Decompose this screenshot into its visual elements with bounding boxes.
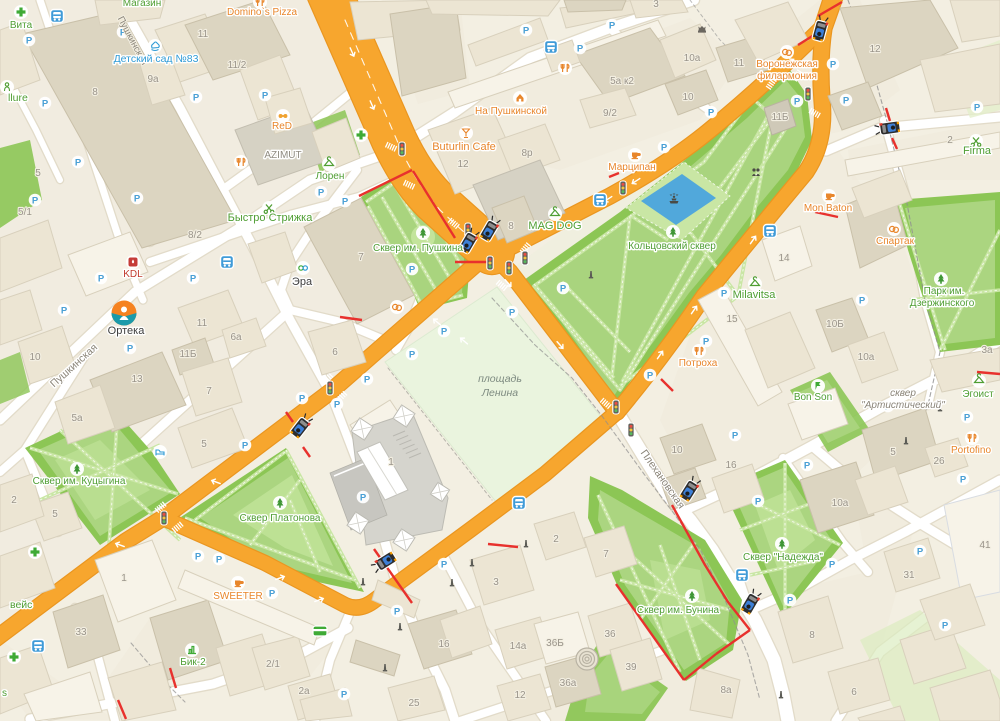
svg-text:P: P [75,157,82,168]
svg-text:10а: 10а [684,53,701,64]
svg-text:s: s [2,688,7,699]
svg-text:P: P [732,430,739,441]
svg-text:P: P [409,264,416,275]
svg-text:3: 3 [493,577,499,588]
svg-text:7: 7 [206,386,212,397]
svg-text:P: P [364,374,371,385]
svg-text:P: P [942,620,949,631]
svg-text:5а: 5а [71,413,83,424]
svg-text:16: 16 [438,639,450,650]
svg-text:филармония: филармония [757,70,817,82]
svg-text:P: P [360,492,367,503]
svg-text:Эра: Эра [292,276,313,288]
svg-text:MAG DOG: MAG DOG [528,220,581,232]
svg-text:33: 33 [75,627,87,638]
svg-text:6: 6 [851,687,857,698]
svg-text:Сквер им. Пушкина: Сквер им. Пушкина [373,243,463,254]
svg-text:Эгоист: Эгоист [962,389,994,400]
svg-text:P: P [787,595,794,606]
svg-text:Кольцовский сквер: Кольцовский сквер [628,241,716,252]
svg-text:P: P [609,20,616,31]
svg-text:7: 7 [603,549,609,560]
svg-text:12: 12 [869,44,881,55]
svg-text:14: 14 [778,253,790,264]
svg-text:6: 6 [332,347,338,358]
svg-text:AZIMUT: AZIMUT [264,150,301,161]
svg-text:P: P [647,370,654,381]
svg-text:Воронежская: Воронежская [756,59,818,70]
svg-text:Buturlin Cafe: Buturlin Cafe [432,141,496,153]
svg-text:P: P [134,193,141,204]
svg-text:2: 2 [11,495,17,506]
svg-text:вейс: вейс [10,599,32,611]
svg-text:10Б: 10Б [826,319,844,330]
svg-text:1: 1 [121,573,127,584]
svg-text:Марципан: Марципан [608,162,655,173]
svg-text:15: 15 [726,314,738,325]
svg-text:P: P [334,399,341,410]
svg-text:5: 5 [35,168,41,179]
svg-text:5: 5 [890,447,896,458]
svg-text:Дзержинского: Дзержинского [910,298,975,309]
svg-text:10а: 10а [858,352,875,363]
svg-text:P: P [299,393,306,404]
svg-text:Bon Son: Bon Son [794,392,832,403]
svg-text:5: 5 [201,439,207,450]
svg-text:P: P [560,283,567,294]
svg-text:11: 11 [734,58,745,69]
svg-text:"Артистический": "Артистический" [861,400,945,411]
svg-text:9/2: 9/2 [603,108,617,119]
svg-text:Сквер "Надежда": Сквер "Надежда" [743,552,823,563]
svg-text:Milavitsa: Milavitsa [733,289,777,301]
svg-text:P: P [26,35,33,46]
svg-text:P: P [974,102,981,113]
svg-text:P: P [318,187,325,198]
svg-text:2/1: 2/1 [266,659,280,670]
svg-text:P: P [708,107,715,118]
svg-text:8: 8 [809,630,815,641]
svg-text:P: P [964,412,971,423]
svg-text:12: 12 [457,159,469,170]
svg-text:5а к2: 5а к2 [610,76,634,87]
svg-text:25: 25 [408,698,420,709]
svg-text:41: 41 [979,540,991,551]
svg-text:P: P [721,288,728,299]
svg-text:Спартак: Спартак [876,236,915,247]
svg-text:10: 10 [682,92,694,103]
svg-text:P: P [98,273,105,284]
svg-text:8: 8 [92,87,98,98]
svg-text:SWEETER: SWEETER [213,591,262,602]
svg-text:P: P [577,43,584,54]
svg-text:7: 7 [358,252,364,263]
svg-text:Магазин: Магазин [123,0,162,9]
svg-text:9a: 9a [147,74,159,85]
svg-text:8/2: 8/2 [188,230,202,241]
svg-text:P: P [804,460,811,471]
svg-text:14а: 14а [510,641,527,652]
svg-text:Вита: Вита [10,20,33,31]
svg-text:P: P [242,440,249,451]
svg-text:1: 1 [388,457,394,468]
svg-text:Mon Baton: Mon Baton [804,203,852,214]
svg-text:2а: 2а [298,686,310,697]
svg-text:Portofino: Portofino [951,445,991,456]
svg-text:11Б: 11Б [180,349,197,360]
svg-text:площадь: площадь [478,373,522,385]
svg-text:P: P [829,559,836,570]
svg-text:P: P [42,98,49,109]
svg-text:P: P [960,474,967,485]
svg-text:сквер: сквер [890,388,916,399]
svg-text:Детский сад №83: Детский сад №83 [114,53,199,65]
svg-text:P: P [409,349,416,360]
svg-text:P: P [441,326,448,337]
svg-text:На Пушкинской: На Пушкинской [475,106,547,117]
svg-text:10: 10 [29,352,41,363]
svg-text:ReD: ReD [272,121,292,132]
svg-text:llure: llure [8,92,28,104]
svg-text:31: 31 [903,570,915,581]
svg-text:Лорен: Лорен [316,171,345,182]
svg-text:P: P [341,689,348,700]
svg-text:P: P [509,307,516,318]
svg-text:5: 5 [52,509,58,520]
svg-text:2: 2 [553,534,559,545]
svg-text:13: 13 [131,374,143,385]
svg-text:P: P [661,142,668,153]
svg-text:P: P [917,546,924,557]
svg-text:P: P [830,59,837,70]
svg-text:Ленина: Ленина [481,387,518,399]
svg-text:P: P [394,606,401,617]
svg-text:P: P [190,273,197,284]
svg-text:8а: 8а [720,685,732,696]
svg-text:26: 26 [933,456,945,467]
svg-text:P: P [342,196,349,207]
svg-text:11/2: 11/2 [228,60,247,71]
svg-text:8: 8 [508,221,514,232]
svg-text:36а: 36а [560,678,577,689]
svg-text:12: 12 [514,690,526,701]
svg-text:5/1: 5/1 [18,207,32,218]
svg-text:36Б: 36Б [546,638,564,649]
svg-text:P: P [703,336,710,347]
svg-text:2: 2 [947,135,953,146]
svg-text:11: 11 [198,29,209,40]
svg-text:16: 16 [725,460,737,471]
svg-text:6а: 6а [230,332,242,343]
svg-text:3: 3 [653,0,659,10]
svg-text:KDL: KDL [123,269,143,280]
svg-text:P: P [794,96,801,107]
svg-text:8p: 8p [521,148,533,159]
svg-text:P: P [127,343,134,354]
svg-text:Ортека: Ортека [108,325,146,337]
svg-text:3а: 3а [981,345,993,356]
svg-text:P: P [61,305,68,316]
svg-text:P: P [441,559,448,570]
svg-text:P: P [32,195,39,206]
svg-text:10: 10 [671,445,683,456]
svg-text:Быстро Стрижка: Быстро Стрижка [228,212,314,224]
svg-text:P: P [755,496,762,507]
svg-text:Парк им.: Парк им. [924,286,965,297]
svg-text:Domino`s Pizza: Domino`s Pizza [227,6,297,18]
svg-text:11: 11 [197,318,208,329]
svg-text:P: P [843,95,850,106]
svg-text:P: P [859,295,866,306]
svg-text:Сквер Платонова: Сквер Платонова [240,513,321,524]
svg-text:11Б: 11Б [772,112,789,123]
svg-text:Сквер им. Бунина: Сквер им. Бунина [637,605,720,616]
svg-text:36: 36 [604,629,616,640]
svg-text:P: P [193,92,200,103]
svg-text:P: P [195,551,202,562]
svg-text:Бик-2: Бик-2 [180,657,206,668]
svg-text:P: P [269,588,276,599]
svg-text:Firma: Firma [963,145,992,157]
svg-text:10а: 10а [832,498,849,509]
svg-text:Потроха: Потроха [679,358,718,369]
svg-text:P: P [262,90,269,101]
svg-text:P: P [523,25,530,36]
svg-text:39: 39 [625,662,637,673]
svg-text:P: P [216,554,223,565]
svg-text:Сквер им. Куцыгина: Сквер им. Куцыгина [33,476,126,487]
